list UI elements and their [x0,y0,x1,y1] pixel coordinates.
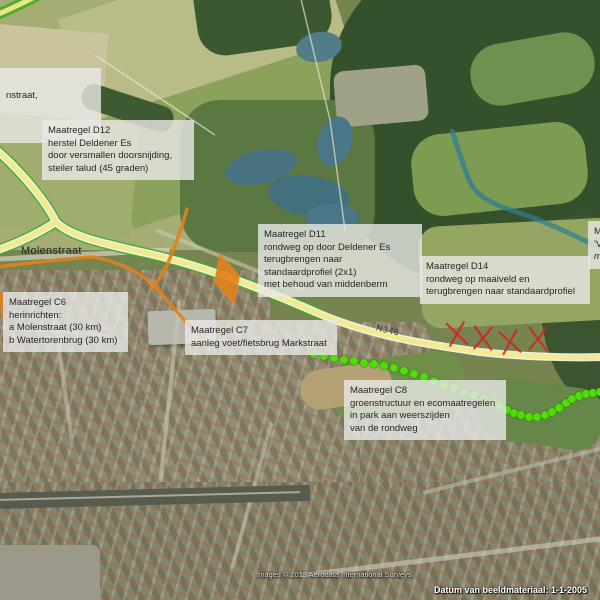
label-line: Maatregel D11 [264,229,416,242]
road-label-molenstraat: Molenstraat [21,245,82,257]
label-line: nstraat, [6,90,95,103]
label-maatregel-c8: Maatregel C8groenstructuur en ecomaatreg… [344,380,506,440]
label-line: b Watertorenbrug (30 km) [9,335,122,348]
label-line: rondweg op door Deldener Es [264,242,416,255]
eco-dot [360,359,369,368]
label-line: terugbrengen naar [264,254,416,267]
eco-dot [525,413,534,422]
label-line: Maatregel D14 [426,261,584,274]
label-line: terugbrengen naar standaardprofiel [426,286,584,299]
eco-dot [380,362,389,371]
label-line: aanleg voet/fietsbrug Markstraat [191,338,331,351]
label-line: 'V [594,239,600,252]
label-maatregel-d12: Maatregel D12herstel Deldener Esdoor ver… [42,120,194,180]
eco-dot [350,357,359,366]
label-line: M [594,226,600,239]
removed-section-x [528,328,547,351]
label-line: herstel Deldener Es [48,138,188,151]
label-line: Maatregel C6 [9,297,122,310]
eco-dot [390,364,399,373]
eco-dot [370,360,379,369]
label-maatregel-c7: Maatregel C7aanleg voet/fietsbrug Markst… [185,320,337,355]
label-line: standaardprofiel (2x1) [264,267,416,280]
eco-dot [517,411,526,420]
label-line: groenstructuur en ecomaatregelen [350,398,500,411]
imagery-date-bar: Datum van beeldmateriaal: 1-1-200552°15'… [434,585,600,595]
label-line: in park aan weerszijden [350,410,500,423]
label-line: herinrichten: [9,310,122,323]
label-maatregel-d11: Maatregel D11rondweg op door Deldener Es… [258,224,422,297]
eco-dot [533,413,542,422]
label-line: rondweg op maaiveld en [426,274,584,287]
eco-dot [410,370,419,379]
label-line: met behoud van middenberm [264,279,416,292]
eco-dot [340,356,349,365]
eco-dot [400,367,409,376]
label-partial-right: M'Vm [588,221,600,269]
removed-section-x [473,326,492,349]
label-line: m [594,251,600,264]
imagery-attribution: Images © 2013 Aerodata International Sur… [256,570,412,579]
label-line: Maatregel D12 [48,125,188,138]
label-line: steiler talud (45 graden) [48,163,188,176]
imagery-date: Datum van beeldmateriaal: 1-1-2005 [434,585,587,595]
label-line: door versmallen doorsnijding, [48,150,188,163]
label-line: a Molenstraat (30 km) [9,322,122,335]
label-line: van de rondweg [350,423,500,436]
removed-section-x [447,322,467,346]
stream-line [452,131,600,250]
farm-track [300,0,345,230]
label-line: Maatregel C8 [350,385,500,398]
label-line: Maatregel C7 [191,325,331,338]
label-maatregel-c6: Maatregel C6herinrichten:a Molenstraat (… [3,292,128,352]
route-deldener-es [152,209,187,289]
satellite-map[interactable]: nstraat, Maatregel D12herstel Deldener E… [0,0,600,600]
label-maatregel-d14: Maatregel D14rondweg op maaiveld enterug… [420,256,590,304]
